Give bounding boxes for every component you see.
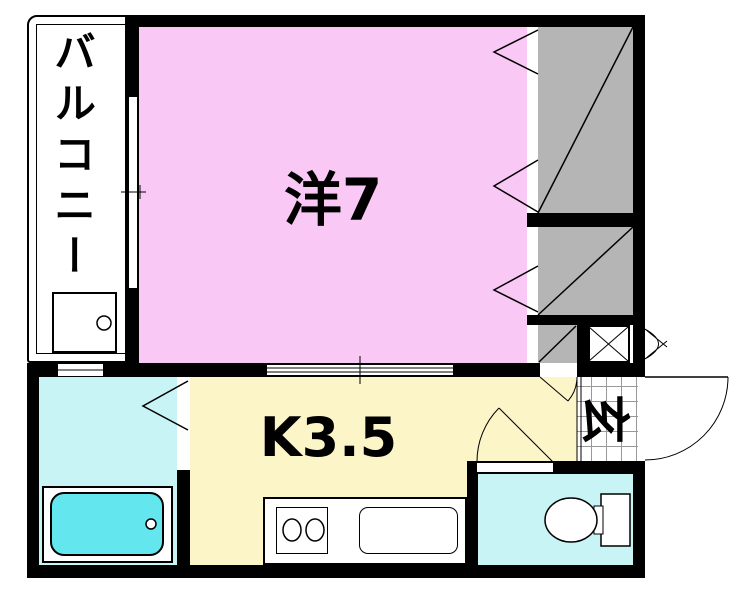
shoe-cabinet-door-arc xyxy=(645,329,667,359)
kitchen-label-text: K3.5 xyxy=(260,406,398,469)
entrance-label-text: 玄 xyxy=(572,394,644,444)
wall-bath-top xyxy=(27,363,190,377)
wall-right-upper xyxy=(633,15,645,363)
entrance-label: 玄 xyxy=(577,377,638,461)
door-bathroom-track xyxy=(177,377,190,470)
wall-bath-right-lower xyxy=(177,470,190,578)
wall-left-upper xyxy=(127,15,139,97)
shoe-cabinet xyxy=(588,325,630,363)
sliding-door-kitchen-room xyxy=(267,363,453,377)
wall-room-bottom-right xyxy=(453,363,540,377)
kitchen-hall-floor xyxy=(467,377,577,461)
kitchen-label: K3.5 xyxy=(190,377,467,497)
wall-toilet-left xyxy=(467,461,478,565)
wall-top xyxy=(127,15,645,27)
wall-closet-divider xyxy=(527,213,645,227)
kitchen-storage-floor xyxy=(538,325,577,363)
closet-upper-floor xyxy=(538,27,633,213)
door-toilet-opening xyxy=(477,463,553,472)
balcony-label: バルコニー xyxy=(48,30,96,310)
bathtub xyxy=(50,492,164,556)
two-burner-stove xyxy=(276,507,328,554)
wall-bottom xyxy=(27,565,645,578)
toilet-floor xyxy=(478,474,633,565)
western-room-label: 洋7 xyxy=(139,27,527,363)
wall-storage-shoebox xyxy=(577,325,588,363)
western-room-label-text: 洋7 xyxy=(284,153,382,237)
kitchen-sink xyxy=(359,507,458,554)
entrance-door-arc xyxy=(645,377,728,460)
balcony-label-text: バルコニー xyxy=(42,30,103,285)
wall-bath-left xyxy=(27,363,39,578)
wall-right-lower xyxy=(633,461,645,578)
window-bathroom xyxy=(58,364,103,376)
wall-entrance-top xyxy=(577,363,645,377)
wall-below-closet xyxy=(527,315,645,325)
closet-lower-floor xyxy=(538,227,633,315)
floor-plan: バルコニー 洋7 K3.5 玄 xyxy=(0,0,736,593)
window-balcony xyxy=(127,97,139,288)
